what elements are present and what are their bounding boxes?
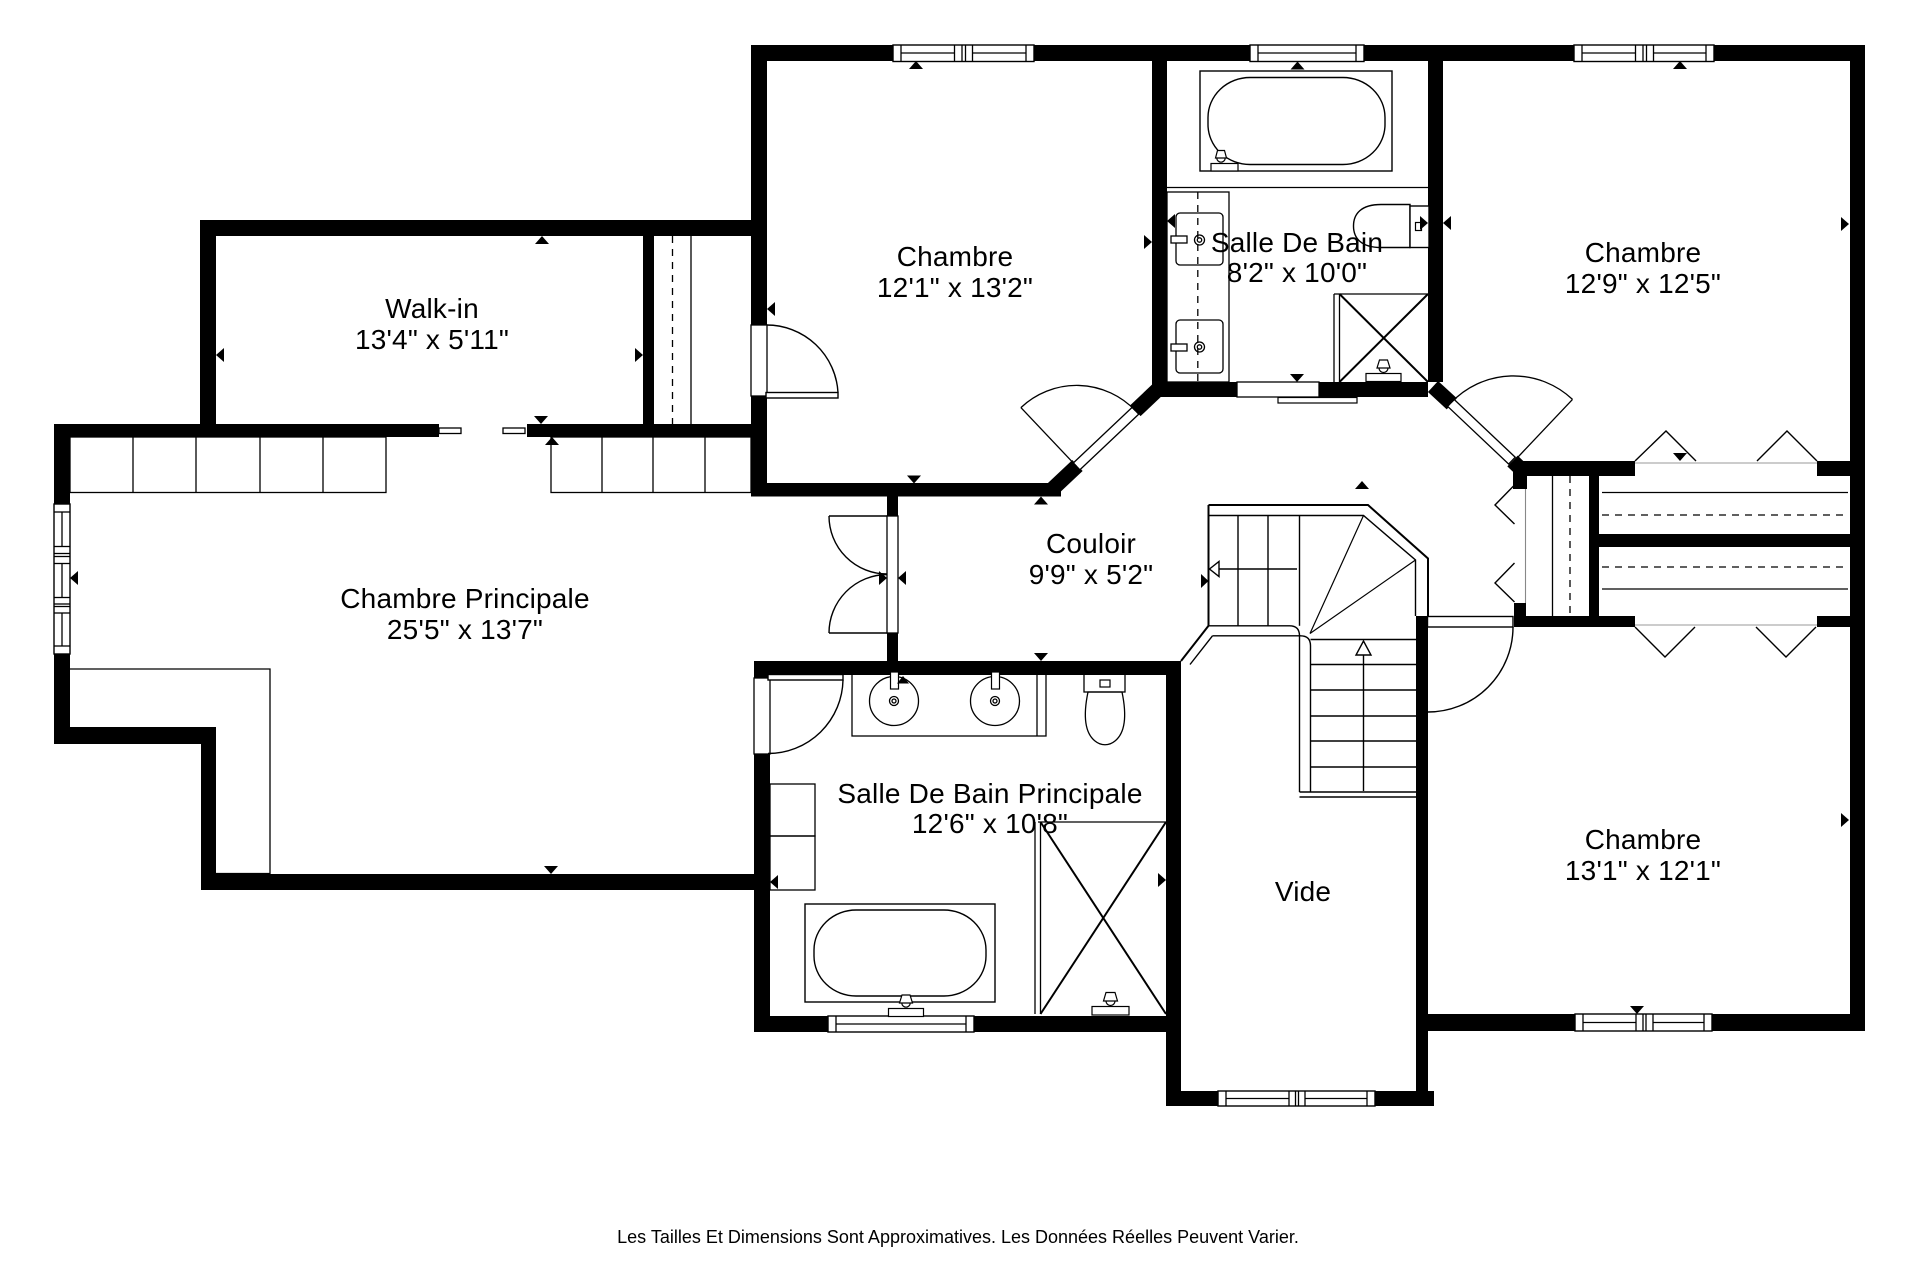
svg-text:Salle De Bain: Salle De Bain xyxy=(1211,227,1383,258)
svg-text:12'1" x 13'2": 12'1" x 13'2" xyxy=(877,272,1033,303)
svg-text:Chambre: Chambre xyxy=(1585,824,1702,855)
svg-text:13'1" x 12'1": 13'1" x 12'1" xyxy=(1565,855,1721,886)
svg-text:Chambre: Chambre xyxy=(1585,237,1702,268)
svg-text:Salle De Bain Principale: Salle De Bain Principale xyxy=(837,778,1142,809)
svg-text:Vide: Vide xyxy=(1275,876,1331,907)
svg-text:Les Tailles Et Dimensions Sont: Les Tailles Et Dimensions Sont Approxima… xyxy=(617,1227,1299,1247)
svg-text:13'4" x 5'11": 13'4" x 5'11" xyxy=(355,324,509,355)
svg-text:Couloir: Couloir xyxy=(1046,528,1136,559)
svg-text:25'5" x 13'7": 25'5" x 13'7" xyxy=(387,614,543,645)
svg-text:8'2" x 10'0": 8'2" x 10'0" xyxy=(1227,257,1367,288)
svg-text:12'9" x 12'5": 12'9" x 12'5" xyxy=(1565,268,1721,299)
svg-text:Chambre: Chambre xyxy=(897,241,1014,272)
svg-text:Walk-in: Walk-in xyxy=(385,293,479,324)
svg-text:12'6" x 10'8": 12'6" x 10'8" xyxy=(912,808,1068,839)
svg-text:9'9" x 5'2": 9'9" x 5'2" xyxy=(1029,559,1154,590)
svg-text:Chambre Principale: Chambre Principale xyxy=(340,583,590,614)
